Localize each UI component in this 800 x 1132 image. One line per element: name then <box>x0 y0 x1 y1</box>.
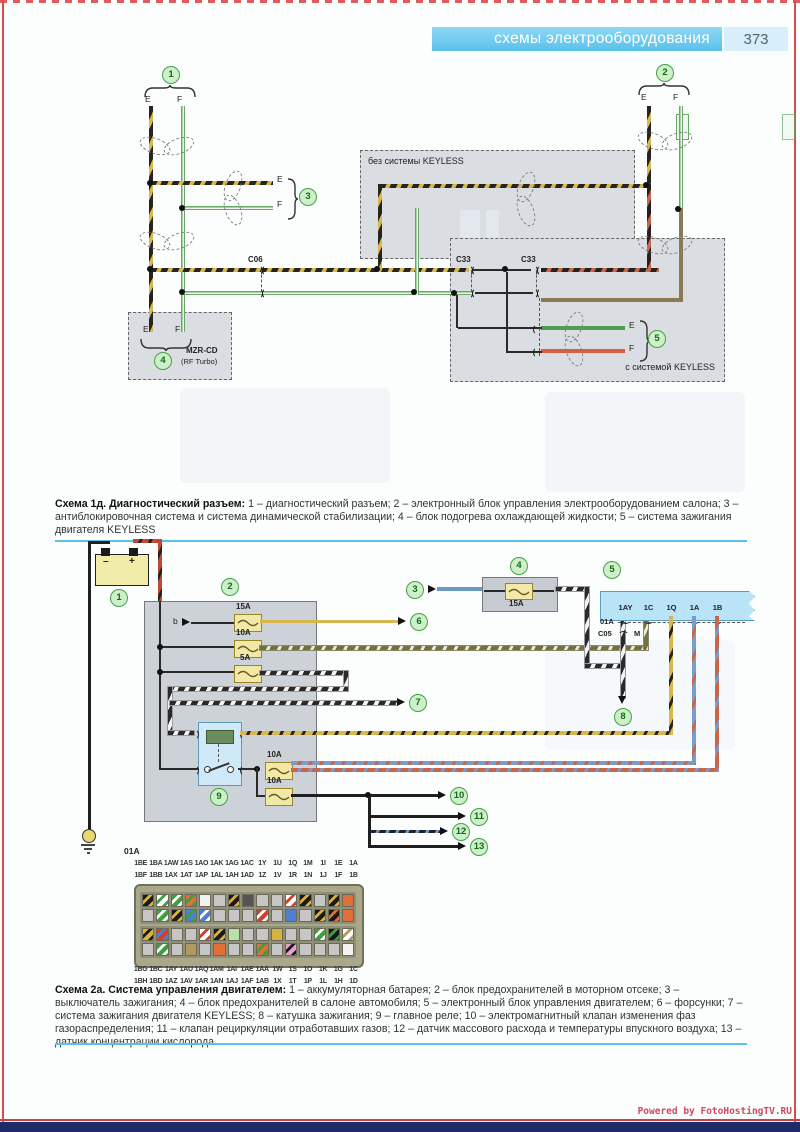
fuse-icon <box>237 669 259 679</box>
pin-cell <box>314 928 326 941</box>
arrow-icon <box>458 842 466 850</box>
connector-label-01a: 01A <box>600 617 614 626</box>
brace <box>138 338 194 352</box>
arrow-icon <box>182 618 190 626</box>
pin-label: 1AB <box>255 978 270 985</box>
battery-terminal <box>101 548 110 556</box>
battery-plus: + <box>129 556 135 567</box>
wire <box>647 184 651 272</box>
relay-coil <box>206 730 234 744</box>
pin-cell <box>185 928 197 941</box>
twisted-pair-icon <box>517 173 537 225</box>
wire <box>378 184 382 272</box>
pin-cell <box>314 909 326 922</box>
connector-link <box>536 270 537 292</box>
fuse-label: 15A <box>509 599 524 608</box>
pin-label: 1AC <box>239 860 254 867</box>
wire <box>437 587 483 591</box>
junction-dot <box>675 206 681 212</box>
pin-label: 1BA <box>148 860 163 867</box>
callout-7: 7 <box>409 694 427 712</box>
caption-diagram-2: Схема 2а. Система управления двигателем:… <box>55 984 747 1049</box>
header-title: схемы электрооборудования <box>494 30 710 48</box>
connector-hook <box>537 265 546 276</box>
connector-hook <box>618 631 629 640</box>
wire <box>456 295 458 328</box>
pin-cell <box>228 928 240 941</box>
arrow-icon <box>428 585 436 593</box>
pin-cell <box>142 909 154 922</box>
pin-cell <box>171 943 183 956</box>
fuse-15a <box>505 583 533 600</box>
pin-label: 1Q <box>285 860 300 867</box>
wire-label-e: E <box>277 174 283 184</box>
pin-label: 1AT <box>179 872 194 879</box>
pin-cell <box>299 928 311 941</box>
pin-label: 1AG <box>224 860 239 867</box>
cell-row <box>142 928 354 941</box>
junction-dot <box>179 205 185 211</box>
pin-cell <box>342 943 354 956</box>
fuse-icon <box>508 587 530 597</box>
pin-cell <box>213 909 225 922</box>
pin-label: 1C <box>346 966 361 973</box>
connector-hook <box>533 324 542 335</box>
pin-label: 1BG <box>133 966 148 973</box>
pin-label: 1AR <box>194 978 209 985</box>
callout-4: 4 <box>154 352 172 370</box>
wire <box>291 768 719 772</box>
pin-label: 1BB <box>148 872 163 879</box>
battery-terminal <box>129 548 138 556</box>
connector-label-c33: C33 <box>521 255 536 264</box>
junction-dot <box>502 266 508 272</box>
fuse-label: 5A <box>240 653 250 662</box>
pin-cell <box>271 894 283 907</box>
wire <box>161 646 234 648</box>
pin-cell <box>314 943 326 956</box>
callout-5: 5 <box>603 561 621 579</box>
pin-cell <box>328 928 340 941</box>
callout-10: 10 <box>450 787 468 805</box>
pin-cell <box>142 943 154 956</box>
connector-link <box>618 622 745 623</box>
pin-label: 1I <box>315 860 330 867</box>
pin-cell <box>171 894 183 907</box>
connector-hook <box>472 288 481 299</box>
pin-label: 1AK <box>209 860 224 867</box>
pin-cell <box>256 894 268 907</box>
fuse-label: 10A <box>236 628 251 637</box>
cell-row <box>142 943 354 956</box>
pin-label: 1E <box>331 860 346 867</box>
pin-label: 1BF <box>133 872 148 879</box>
pin-cell <box>285 894 297 907</box>
twisted-pair-icon <box>141 135 193 155</box>
pin-label: 1P <box>300 978 315 985</box>
fuse-label: 10A <box>267 776 282 785</box>
connector-label-c06: C06 <box>248 255 263 264</box>
wire <box>88 541 110 544</box>
fuse-icon <box>237 618 259 628</box>
pin-cell <box>228 894 240 907</box>
callout-2: 2 <box>656 64 674 82</box>
bottom-navy-bar <box>0 1122 800 1132</box>
wire <box>260 671 348 675</box>
caption-2-title: Схема 2а. Система управления двигателем: <box>55 984 286 996</box>
callout-3: 3 <box>299 188 317 206</box>
pin-cell <box>271 943 283 956</box>
wire <box>458 327 542 329</box>
pin-cell <box>271 928 283 941</box>
pin-label: 1T <box>285 978 300 985</box>
callout-9: 9 <box>210 788 228 806</box>
connector-hook <box>533 347 542 358</box>
pin-label: 1L <box>315 978 330 985</box>
pin-cell <box>142 894 154 907</box>
wire <box>256 768 258 797</box>
connector-label-m: M <box>634 629 640 638</box>
ecu-pin-label: 1AY <box>614 603 637 612</box>
pin-label: 1Y <box>255 860 270 867</box>
pin-label: 1AD <box>239 872 254 879</box>
arrow-icon <box>438 791 446 799</box>
pin-label: 1K <box>315 966 330 973</box>
wire <box>585 664 623 668</box>
pin-label: 1AV <box>179 978 194 985</box>
pin-cell <box>342 909 354 922</box>
twisted-pair-icon <box>639 234 691 254</box>
pin-label: 1G <box>331 966 346 973</box>
page-left-trim <box>2 0 4 1132</box>
pin-cell <box>256 943 268 956</box>
wire <box>240 731 673 735</box>
pin-label: 1H <box>331 978 346 985</box>
connector-hook <box>190 729 199 740</box>
connector-hook <box>262 265 271 276</box>
pin-cell <box>285 943 297 956</box>
fuse-5a <box>234 665 262 683</box>
pin-label: 1U <box>270 860 285 867</box>
ghost-artifact <box>180 388 390 483</box>
pin-cell <box>271 909 283 922</box>
arrow-icon <box>458 812 466 820</box>
wire <box>370 830 440 833</box>
wire-label-f: F <box>629 343 634 353</box>
callout-12: 12 <box>452 823 470 841</box>
pin-cell <box>285 909 297 922</box>
wire <box>161 768 198 770</box>
connector-block-mark <box>782 114 795 140</box>
wire <box>291 761 696 765</box>
pin-cell <box>228 943 240 956</box>
wire-label-e: E <box>629 320 635 330</box>
caption-1-title: Схема 1д. Диагностический разъем: <box>55 498 245 510</box>
wire <box>168 687 172 735</box>
wire <box>585 587 589 668</box>
pin-cell <box>299 909 311 922</box>
no-keyless-label: без системы KEYLESS <box>368 156 464 166</box>
connector-link <box>261 270 262 292</box>
junction-dot <box>451 290 457 296</box>
pin-cell <box>342 928 354 941</box>
callout-5: 5 <box>648 330 666 348</box>
pin-label: 1S <box>285 966 300 973</box>
pin-label: 1R <box>285 872 300 879</box>
pin-label: 1AI <box>224 966 239 973</box>
pin-label-row: 1BF1BB1AX1AT1AP1AL1AH1AD1Z1V1R1N1J1F1B <box>133 872 361 879</box>
pin-label-row: 1BE1BA1AW1AS1AO1AK1AG1AC1Y1U1Q1M1I1E1A <box>133 860 361 867</box>
wire <box>692 616 696 763</box>
pin-label: 1AE <box>239 966 254 973</box>
fuse-icon <box>268 792 290 802</box>
connector-hook <box>190 765 199 776</box>
wire <box>260 646 648 650</box>
pin-cell <box>156 894 168 907</box>
connector-hook <box>472 265 481 276</box>
cell-row <box>142 894 354 907</box>
pin-label: 1AP <box>194 872 209 879</box>
callout-2: 2 <box>221 578 239 596</box>
pin-cell <box>242 909 254 922</box>
with-keyless-box <box>450 238 725 382</box>
pin-label: 1B <box>346 872 361 879</box>
pin-label: 1O <box>300 966 315 973</box>
pin-label: 1AN <box>209 978 224 985</box>
twisted-pair-icon <box>639 130 691 150</box>
callout-4: 4 <box>510 557 528 575</box>
callout-1: 1 <box>162 66 180 84</box>
pin-label: 1AZ <box>163 978 178 985</box>
pin-cell <box>342 894 354 907</box>
pin-cell <box>213 928 225 941</box>
pin-cell <box>185 894 197 907</box>
relay-contact <box>227 766 234 773</box>
connector-label-c33: C33 <box>456 255 471 264</box>
wire <box>621 614 625 698</box>
ground-icon <box>81 844 95 846</box>
pin-label: 1AM <box>209 966 224 973</box>
terminal-label-b: b <box>173 616 178 626</box>
pin-cell <box>328 943 340 956</box>
wire <box>368 796 371 848</box>
ecu-pin-label: 1C <box>637 603 660 612</box>
pin-label: 1A <box>346 860 361 867</box>
mzr-sublabel: (RF Turbo) <box>181 357 217 366</box>
ground-icon <box>87 852 90 854</box>
junction-dot <box>157 669 163 675</box>
arrow-icon <box>440 827 448 835</box>
connector-link <box>471 270 472 292</box>
pin-label: 1F <box>331 872 346 879</box>
pin-cell <box>199 943 211 956</box>
pin-label: 1AX <box>163 872 178 879</box>
pin-cell <box>299 894 311 907</box>
pin-label: 1BH <box>133 978 148 985</box>
wire <box>541 268 659 272</box>
relay-link <box>218 744 219 762</box>
wire-label-e: E <box>641 92 647 102</box>
pin-label: 1D <box>346 978 361 985</box>
callout-6: 6 <box>410 613 428 631</box>
ecu-pin-label: 1Q <box>660 603 683 612</box>
pin-cell <box>171 909 183 922</box>
twisted-pair-icon <box>224 172 244 224</box>
pin-cell <box>142 928 154 941</box>
wire <box>506 272 508 353</box>
pin-cell <box>213 943 225 956</box>
pin-cell <box>256 909 268 922</box>
pin-cell <box>242 943 254 956</box>
pin-label: 1AW <box>163 860 178 867</box>
cell-row <box>142 909 354 922</box>
pin-label: 1V <box>270 872 285 879</box>
pin-label: 1AA <box>255 966 270 973</box>
pin-label: 1BE <box>133 860 148 867</box>
pin-label: 1BD <box>148 978 163 985</box>
pin-label-row: 1BG1BC1AY1AU1AQ1AM1AI1AE1AA1W1S1O1K1G1C <box>133 966 361 973</box>
wire <box>715 616 719 770</box>
wire <box>170 701 397 705</box>
pin-label: 1AU <box>179 966 194 973</box>
pin-label: 1AS <box>179 860 194 867</box>
wire <box>380 184 651 188</box>
connector-label-c05: C05 <box>598 629 612 638</box>
pin-cell <box>185 943 197 956</box>
callout-8: 8 <box>614 708 632 726</box>
wire <box>541 298 683 302</box>
wire-label-f: F <box>175 324 180 334</box>
junction-dot <box>179 289 185 295</box>
pin-cell <box>156 943 168 956</box>
twisted-pair-icon <box>565 313 585 365</box>
wire <box>291 794 370 797</box>
wire-label-f: F <box>177 94 182 104</box>
battery-minus: – <box>103 556 109 567</box>
pin-label: 1M <box>300 860 315 867</box>
wire <box>370 815 458 818</box>
junction-dot <box>374 266 380 272</box>
wire <box>151 268 469 272</box>
fuse-10a <box>265 788 293 806</box>
brace <box>286 176 300 222</box>
pin-cell <box>314 894 326 907</box>
wire <box>669 616 673 733</box>
pin-label: 1W <box>270 966 285 973</box>
connector-cells-upper <box>140 892 356 924</box>
pin-label: 1AQ <box>194 966 209 973</box>
wire <box>370 794 438 797</box>
pin-cell <box>328 894 340 907</box>
twisted-pair-icon <box>141 230 193 250</box>
wire-label-f: F <box>277 199 282 209</box>
pin-label: 1AH <box>224 872 239 879</box>
pin-label: 1AO <box>194 860 209 867</box>
page-top-trim <box>0 0 800 3</box>
pin-label: 1Z <box>255 872 270 879</box>
callout-11: 11 <box>470 808 488 826</box>
pin-label: 1J <box>315 872 330 879</box>
wire <box>260 620 398 623</box>
fuse-icon <box>268 766 290 776</box>
pin-cell <box>185 909 197 922</box>
pin-cell <box>328 909 340 922</box>
ground-icon <box>82 829 96 843</box>
pin-cell <box>242 928 254 941</box>
wire <box>370 845 458 848</box>
wire <box>679 106 683 210</box>
pin-label: 1N <box>300 872 315 879</box>
separator-line <box>55 1043 747 1045</box>
junction-dot <box>147 180 153 186</box>
wire-label-e: E <box>145 94 151 104</box>
junction-dot <box>643 182 649 188</box>
pin-cell <box>171 928 183 941</box>
connector-hook <box>240 765 249 776</box>
wire <box>191 622 234 624</box>
ecu-pin-label: 1A <box>683 603 706 612</box>
callout-3: 3 <box>406 581 424 599</box>
wire <box>151 181 273 185</box>
fuse-label: 15A <box>236 602 251 611</box>
junction-dot <box>411 289 417 295</box>
pin-cell <box>199 909 211 922</box>
connector-grid-label: 01A <box>124 846 140 856</box>
pin-cell <box>199 894 211 907</box>
pin-label: 1AF <box>239 978 254 985</box>
arrow-down-icon <box>618 696 626 704</box>
pin-cell <box>199 928 211 941</box>
connector-cells-lower <box>140 926 356 958</box>
ecu-pins: 1AY1C1Q1A1B <box>614 603 729 612</box>
junction-dot <box>157 644 163 650</box>
pin-label: 1BC <box>148 966 163 973</box>
pin-cell <box>228 909 240 922</box>
callout-13: 13 <box>470 838 488 856</box>
pin-label: 1AL <box>209 872 224 879</box>
junction-dot <box>147 266 153 272</box>
caption-diagram-1: Схема 1д. Диагностический разъем: 1 – ди… <box>55 498 747 537</box>
wire <box>183 291 471 295</box>
pin-cell <box>156 909 168 922</box>
wire <box>159 601 161 770</box>
wire <box>415 208 419 295</box>
arrow-icon <box>397 698 405 706</box>
pin-cell <box>156 928 168 941</box>
connector-hook <box>262 288 271 299</box>
arrow-icon <box>398 617 406 625</box>
wire <box>158 539 162 603</box>
wire <box>475 292 533 294</box>
pin-cell <box>256 928 268 941</box>
ground-icon <box>84 848 92 850</box>
pin-cell <box>285 928 297 941</box>
fuse-label: 10A <box>267 750 282 759</box>
wire <box>88 541 91 832</box>
wire <box>168 687 348 691</box>
wire <box>161 671 234 673</box>
callout-1: 1 <box>110 589 128 607</box>
header-bar: схемы электрооборудования <box>432 27 722 51</box>
wire-label-f: F <box>673 92 678 102</box>
watermark: Powered by FotoHostingTV.RU <box>500 1106 792 1117</box>
wire <box>679 208 683 302</box>
pin-label: 1X <box>270 978 285 985</box>
pin-cell <box>242 894 254 907</box>
pin-label: 1AJ <box>224 978 239 985</box>
wire-label-e: E <box>143 324 149 334</box>
pin-cell <box>213 894 225 907</box>
